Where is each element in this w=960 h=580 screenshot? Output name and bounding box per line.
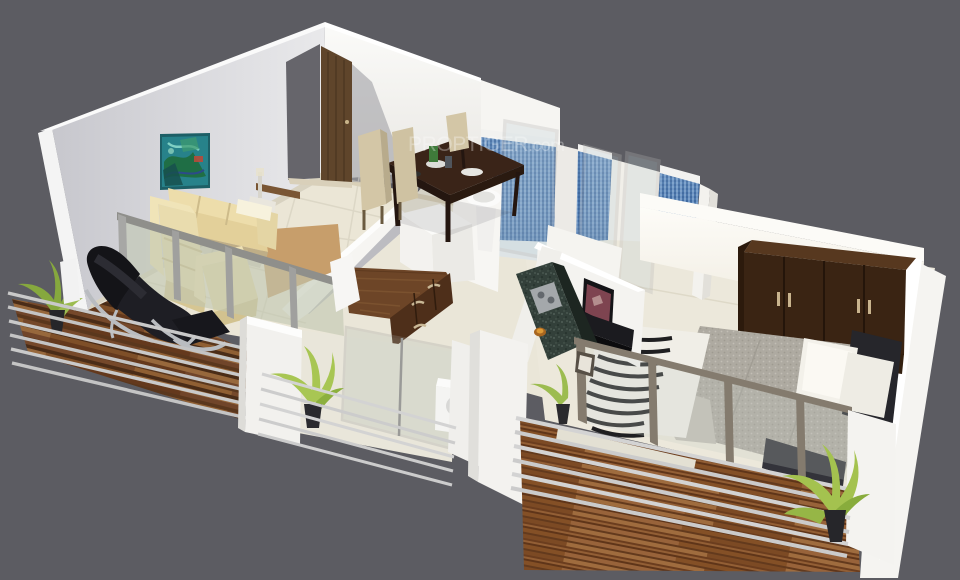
svg-text:PROPTIGER.com: PROPTIGER.com [408, 133, 564, 156]
